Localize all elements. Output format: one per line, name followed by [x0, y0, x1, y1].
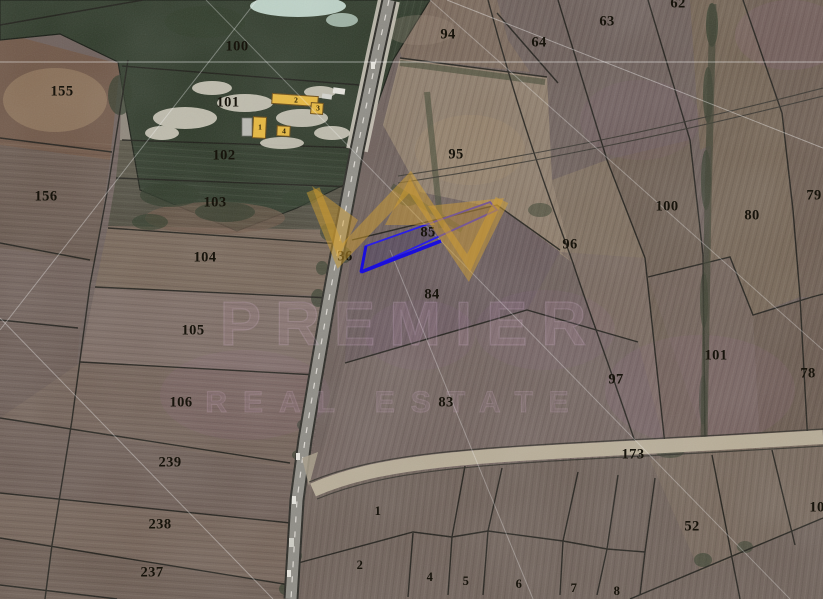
parcel-label-52: 52 [684, 518, 699, 534]
parcel-label-104: 104 [194, 249, 217, 265]
parcel-label-6: 6 [516, 577, 523, 591]
building-label-2: 2 [294, 96, 298, 105]
watermark-text-line1: PREMIER [220, 290, 600, 359]
map-viewport[interactable]: 1001551011021561031041051062392382379464… [0, 0, 823, 599]
parcel-label-97: 97 [608, 371, 623, 387]
parcel-label-2: 2 [357, 558, 364, 572]
parcel-label-5: 5 [463, 574, 470, 588]
parcel-label-7: 7 [571, 581, 578, 595]
parcel-label-95: 95 [448, 146, 463, 162]
cadastral-map-svg: 1001551011021561031041051062392382379464… [0, 0, 823, 599]
parcel-label-8: 8 [614, 584, 621, 598]
parcel-label-173: 173 [622, 446, 645, 462]
parcel-label-106: 106 [170, 394, 193, 410]
parcel-label-100: 100 [226, 38, 249, 54]
parcel-label-62: 62 [670, 0, 685, 11]
parcel-label-1: 1 [375, 504, 382, 518]
parcel-label-94: 94 [440, 26, 455, 42]
parcel-label-237: 237 [141, 564, 164, 580]
building-label-4: 4 [282, 127, 286, 136]
building-label-1: 1 [258, 123, 262, 132]
parcel-label-78: 78 [800, 365, 815, 381]
parcel-label-155: 155 [51, 83, 74, 99]
building-label-3: 3 [316, 104, 320, 113]
parcel-label-239: 239 [159, 454, 182, 470]
parcel-label-10: 10 [809, 499, 823, 515]
parcel-label-101: 101 [217, 94, 240, 110]
parcel-label-80: 80 [744, 207, 759, 223]
parcel-label-96: 96 [562, 236, 577, 252]
parcel-label-64: 64 [531, 34, 546, 50]
parcel-label-156: 156 [35, 188, 58, 204]
parcel-label-101: 101 [705, 347, 728, 363]
parcel-label-238: 238 [149, 516, 172, 532]
parcel-label-4: 4 [427, 570, 434, 584]
parcel-label-100: 100 [656, 198, 679, 214]
parcel-label-105: 105 [182, 322, 205, 338]
watermark-text-line2: REAL ESTATE [205, 386, 584, 419]
parcel-label-102: 102 [213, 147, 236, 163]
parcel-label-79: 79 [806, 187, 821, 203]
parcel-label-103: 103 [204, 194, 227, 210]
parcel-label-63: 63 [599, 13, 614, 29]
